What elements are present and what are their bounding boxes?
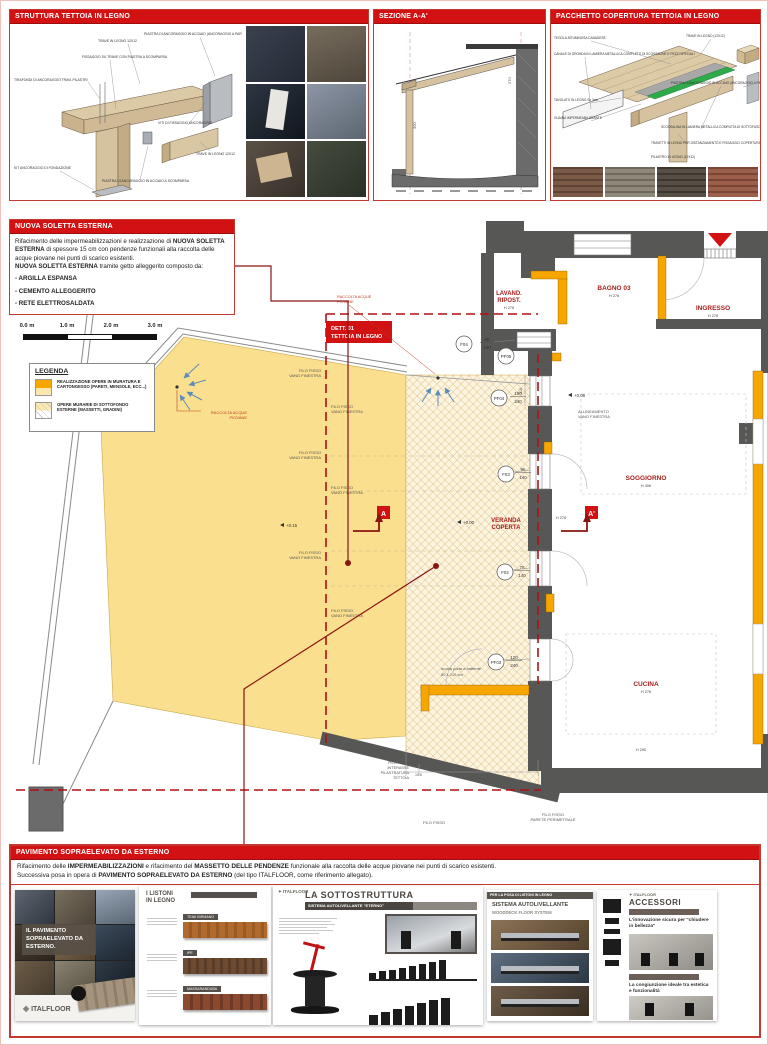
window-pf04 [530,376,550,406]
pedestal-row-large [369,998,477,1025]
room-bagno: BAGNO 03 [597,285,631,292]
struttura-label-2: FISSAGGIO SU TRAVE CON PIASTRA A SCOMPAR… [82,55,168,59]
legend: LEGENDA REALIZZAZIONE OPERE IN MURATURA … [29,363,155,432]
accessori-photo-2 [629,996,713,1020]
photo-detail-2 [307,26,366,82]
detail-01-label: DETT. 01 TETTOIA IN LEGNO [326,321,392,343]
brochure-accessori: ✦ ITALFLOOR ACCESSORI L'innovazione sicu… [597,890,717,1021]
room-soggiorno-h: H 306 [641,484,651,488]
svg-text:PARETE PERIMETRALE: PARETE PERIMETRALE [530,817,575,822]
photo-detail-5 [246,141,305,197]
struttura-label-6: PIASTRA DI ANCORAGGIO IN ACCIAIO A SCOMP… [102,179,190,183]
pacchetto-axon-drawing: TEGOLA BITUMINOSA CANADESE CANALE DI GRO… [551,24,760,164]
svg-text:140: 140 [519,475,527,480]
pedestal-row-small [369,960,477,981]
door-pf03 [530,639,573,681]
svg-text:A: A [381,511,386,518]
section-marker-a1: A' [561,506,598,531]
room-ingresso: INGRESSO [696,305,730,312]
room-bagno-h: H 276 [609,294,619,298]
window-f04 [517,332,551,348]
brochure-listoni: I LISTONIIN LEGNO TEAK BIRMANO IPE MASSA… [139,886,271,1025]
scale-label-1: 1.0 m [51,323,83,329]
struttura-label-5: TRAVE IN LEGNO 12X12 [196,152,235,156]
svg-text:19.5: 19.5 [415,773,422,777]
listoni-title: I LISTONIIN LEGNO [146,891,175,905]
pacchetto-label-l1: CANALE DI GRONDA IN LAMIERA METALLICA CO… [554,52,695,56]
photo-detail-1 [246,26,305,82]
svg-text:280: 280 [471,773,477,777]
room-veranda-h: H 276 [556,516,566,520]
posa-subtitle: WOODDECK FLOOR SYSTEM [492,910,552,915]
scale-bar: 0.0 m 1.0 m 2.0 m 3.0 m [9,323,169,349]
room-ingresso-h: H 276 [708,314,718,318]
svg-text:VANO FINESTRA: VANO FINESTRA [289,373,321,378]
pacchetto-label-r2: SCOSSALINA IN LAMIERA METALLICA COMPLETA… [661,125,760,129]
photo-detail-4 [307,84,366,140]
svg-text:F03: F03 [502,472,510,477]
pacchetto-label-l2: TAVOLATO IN LEGNO Sp 3cm [554,98,598,102]
pavimento-description: Rifacimento delle IMPERMEABILIZZAZIONI e… [11,860,759,885]
panel-pavimento-sopraelevato: PAVIMENTO SOPRAELEVATO DA ESTERNO Rifaci… [9,844,761,1038]
svg-text:240: 240 [514,399,522,404]
photo-detail-6 [307,141,366,197]
sotto-title: LA SOTTOSTRUTTURA [305,890,414,900]
accessori-chip-1 [629,909,699,915]
struttura-label-4: VITI DI FISSAGGIO ANCORAGGIO [158,121,213,125]
accessori-logo: ✦ ITALFLOOR [629,892,656,897]
panel-sezione-title: SEZIONE A-A' [374,10,545,24]
room-soggiorno: SOGGIORNO [626,475,667,482]
roof-tile-photos [553,167,758,197]
accessori-caption-2: La congiunzione ideale tra estetica e fu… [629,983,711,995]
struttura-label-0: TIRAFONDI DI ANCORAGGIO TRAVI-PILASTRI [14,78,88,82]
legend-item-substrate: OPERE MURARIE DI SOTTOFONDO ESTERNE (MAS… [35,402,149,419]
accessori-chip-2 [629,974,699,980]
scale-bar-graphic [23,334,157,340]
svg-text:nuova porta a battente: nuova porta a battente [441,666,482,671]
raccolta2-label-1: RACCOLTA ACQUE [337,295,372,299]
photo-detail-3 [246,84,305,140]
posa-title: SISTEMA AUTOLIVELLANTE [492,902,568,908]
svg-text:140: 140 [518,573,526,578]
room-cucina: CUCINA [633,681,659,688]
sample-label-ipe: IPE [183,950,197,956]
struttura-photo-collage [246,26,366,197]
svg-text:+0.00: +0.00 [463,520,475,525]
posa-banner: PER LA POSA DI LISTONI IN LEGNO [487,892,593,899]
panel-pacchetto-copertura: PACCHETTO COPERTURA TETTOIA IN LEGNO [550,9,761,201]
room-veranda: VERANDA [491,518,521,524]
detail-01-line2: TETTOIA IN LEGNO [331,334,383,340]
accessori-caption-1: L'innovazione sicura per "chiudere in be… [629,918,709,930]
svg-text:PILASTRATURA: PILASTRATURA [381,771,410,775]
veranda-hatched-floor [406,375,539,790]
photo-tiles-1 [553,167,603,197]
svg-text:VANO FINESTRA: VANO FINESTRA [331,409,363,414]
detail-01-line1: DETT. 01 [331,326,354,332]
svg-text:VANO FINESTRA: VANO FINESTRA [289,455,321,460]
struttura-axon-drawing: TIRAFONDI DI ANCORAGGIO TRAVI-PILASTRI T… [10,24,242,198]
scale-label-0: 0.0 m [11,323,43,329]
soletta-bullet-2: - CEMENTO ALLEGGERITO [15,288,229,296]
brochure-sottostruttura: ✦ ITALFLOOR LA SOTTOSTRUTTURA SISTEMA AU… [273,886,483,1025]
scale-label-3: 3.0 m [139,323,171,329]
panel-sezione: SEZIONE A-A' 300 270 [373,9,546,201]
panel-struttura-tettoia: STRUTTURA TETTOIA IN LEGNO [9,9,369,201]
posa-photo-1 [491,920,589,950]
sample-label-massaranduba: MASSARANDUBA [183,986,221,992]
brochure-pages: IL PAVIMENTO SOPRAELEVATO DA ESTERNO. ◆ … [11,885,759,1026]
pacchetto-label-l3: GUAINA IMPERMEABILIZZANTE [554,116,602,120]
accessori-title: ACCESSORI [629,898,681,907]
svg-text:VANO FINESTRA: VANO FINESTRA [331,490,363,495]
svg-text:VANO FINESTRA: VANO FINESTRA [289,555,321,560]
sotto-text-lines [279,916,337,936]
room-lavand-h: H 276 [504,306,514,310]
svg-text:PF04: PF04 [494,396,505,401]
pacchetto-label-r0: TRAVE IN LEGNO (12X12) [686,34,725,38]
soletta-bullet-3: - RETE ELETTROSALDATA [15,300,229,308]
legend-item-masonry: REALIZZAZIONE OPERE IN MURATURA E CARTON… [35,379,149,396]
brochure-cover: IL PAVIMENTO SOPRAELEVATO DA ESTERNO. ◆ … [15,890,135,1021]
panel-pacchetto-title: PACCHETTO COPERTURA TETTOIA IN LEGNO [551,10,760,24]
svg-text:A': A' [588,511,595,518]
sezione-drawing: 300 270 [374,24,545,199]
svg-text:VANO FINESTRA: VANO FINESTRA [578,414,610,419]
svg-text:+0.08: +0.08 [574,393,586,398]
pacchetto-label-r1: PIASTRA DI ANCORAGGIO IN ACCIAIO (ANCORA… [671,81,760,85]
drawing-sheet: DETT. 01 TETTOIA IN LEGNO LAVAND. RIPOST… [0,0,768,1045]
svg-text:TETTOIA: TETTOIA [393,776,409,780]
posa-photo-2 [491,953,589,983]
svg-text:240: 240 [510,663,518,668]
sezione-dim-left: 300 [412,122,417,129]
marker-pf05: PF05 [498,348,514,364]
photo-tiles-3 [657,167,707,197]
legend-title: LEGENDA [35,368,149,375]
svg-text:+0.15: +0.15 [286,523,298,528]
sample-wood-teak [183,922,267,938]
svg-text:90 x 210 cm: 90 x 210 cm [441,672,463,677]
sotto-subtitle: SISTEMA AUTOLIVELLANTE "ETERNO" [305,902,413,910]
struttura-label-3: PIASTRA DI ANCORAGGIO IN ACCIAIO (ANCORA… [144,32,242,36]
sotto-subtitle-bar [413,902,477,910]
scale-label-2: 2.0 m [95,323,127,329]
brochure-posa: PER LA POSA DI LISTONI IN LEGNO SISTEMA … [487,890,593,1021]
svg-text:210: 210 [519,388,523,394]
svg-text:F02: F02 [501,570,509,575]
soletta-paragraph: Rifacimento delle impermeabilizzazioni e… [15,238,229,271]
pacchetto-label-r4: PILASTRO IN LEGNO (12X12) [651,155,695,159]
svg-text:F04: F04 [460,342,468,347]
cover-pedestal-photo [71,986,86,1001]
cover-title: IL PAVIMENTO SOPRAELEVATO DA ESTERNO. [22,924,96,955]
accessori-photo-1 [629,934,713,970]
sample-label-teak: TEAK BIRMANO [183,914,218,920]
pedestal-illustration [285,944,355,1020]
italfloor-logo-icon: ◆ [23,1004,29,1013]
struttura-label-1: TRAVE IN LEGNO 12X12 [98,39,137,43]
svg-text:PF03: PF03 [491,660,502,665]
accessori-parts-column [599,894,625,1018]
svg-text:27: 27 [405,752,409,756]
raccolta-label-2: PIOVANE [230,415,248,420]
room-lavand-2: RIPOST. [497,298,521,304]
italfloor-logo: ◆ ITALFLOOR [23,1004,71,1013]
sample-wood-ipe [183,958,267,974]
soletta-bullet-1: - ARGILLA ESPANSA [15,275,229,283]
svg-text:140: 140 [483,345,491,350]
panel-pavimento-title: PAVIMENTO SOPRAELEVATO DA ESTERNO [11,846,759,860]
sotto-logo: ✦ ITALFLOOR [278,889,308,895]
posa-photo-3 [491,986,589,1016]
panel-nuova-soletta: NUOVA SOLETTA ESTERNA Rifacimento delle … [9,219,235,315]
sezione-dim-right: 270 [507,77,512,84]
svg-text:FILO FISSO: FILO FISSO [423,820,445,825]
svg-text:60: 60 [485,337,490,342]
panel-struttura-title: STRUTTURA TETTOIA IN LEGNO [10,10,368,24]
photo-tiles-4 [708,167,758,197]
legend-text-substrate: OPERE MURARIE DI SOTTOFONDO ESTERNE (MAS… [57,402,149,419]
room-lavand: LAVAND. [496,291,522,297]
h290-label: H 290 [636,748,646,752]
legend-swatch-substrate [35,402,52,419]
legend-text-masonry: REALIZZAZIONE OPERE IN MURATURA E CARTON… [57,379,149,396]
legend-swatch-masonry [35,379,52,396]
panel-soletta-title: NUOVA SOLETTA ESTERNA [10,220,234,234]
svg-text:PF05: PF05 [501,354,512,359]
struttura-label-7: KIT ANCORAGGIO DI FONDAZIONE [14,166,72,170]
listoni-header-bar [191,892,257,898]
pacchetto-label-l0: TEGOLA BITUMINOSA CANADESE [554,36,606,40]
sotto-photo [385,914,477,954]
photo-tiles-2 [605,167,655,197]
pacchetto-label-r3: TRAVETTI IN LEGNO PER DISTANZIAMENTO E F… [651,141,760,145]
sample-wood-massaranduba [183,994,267,1010]
room-cucina-h: H 276 [641,690,651,694]
room-veranda-2: COPERTA [492,525,522,531]
